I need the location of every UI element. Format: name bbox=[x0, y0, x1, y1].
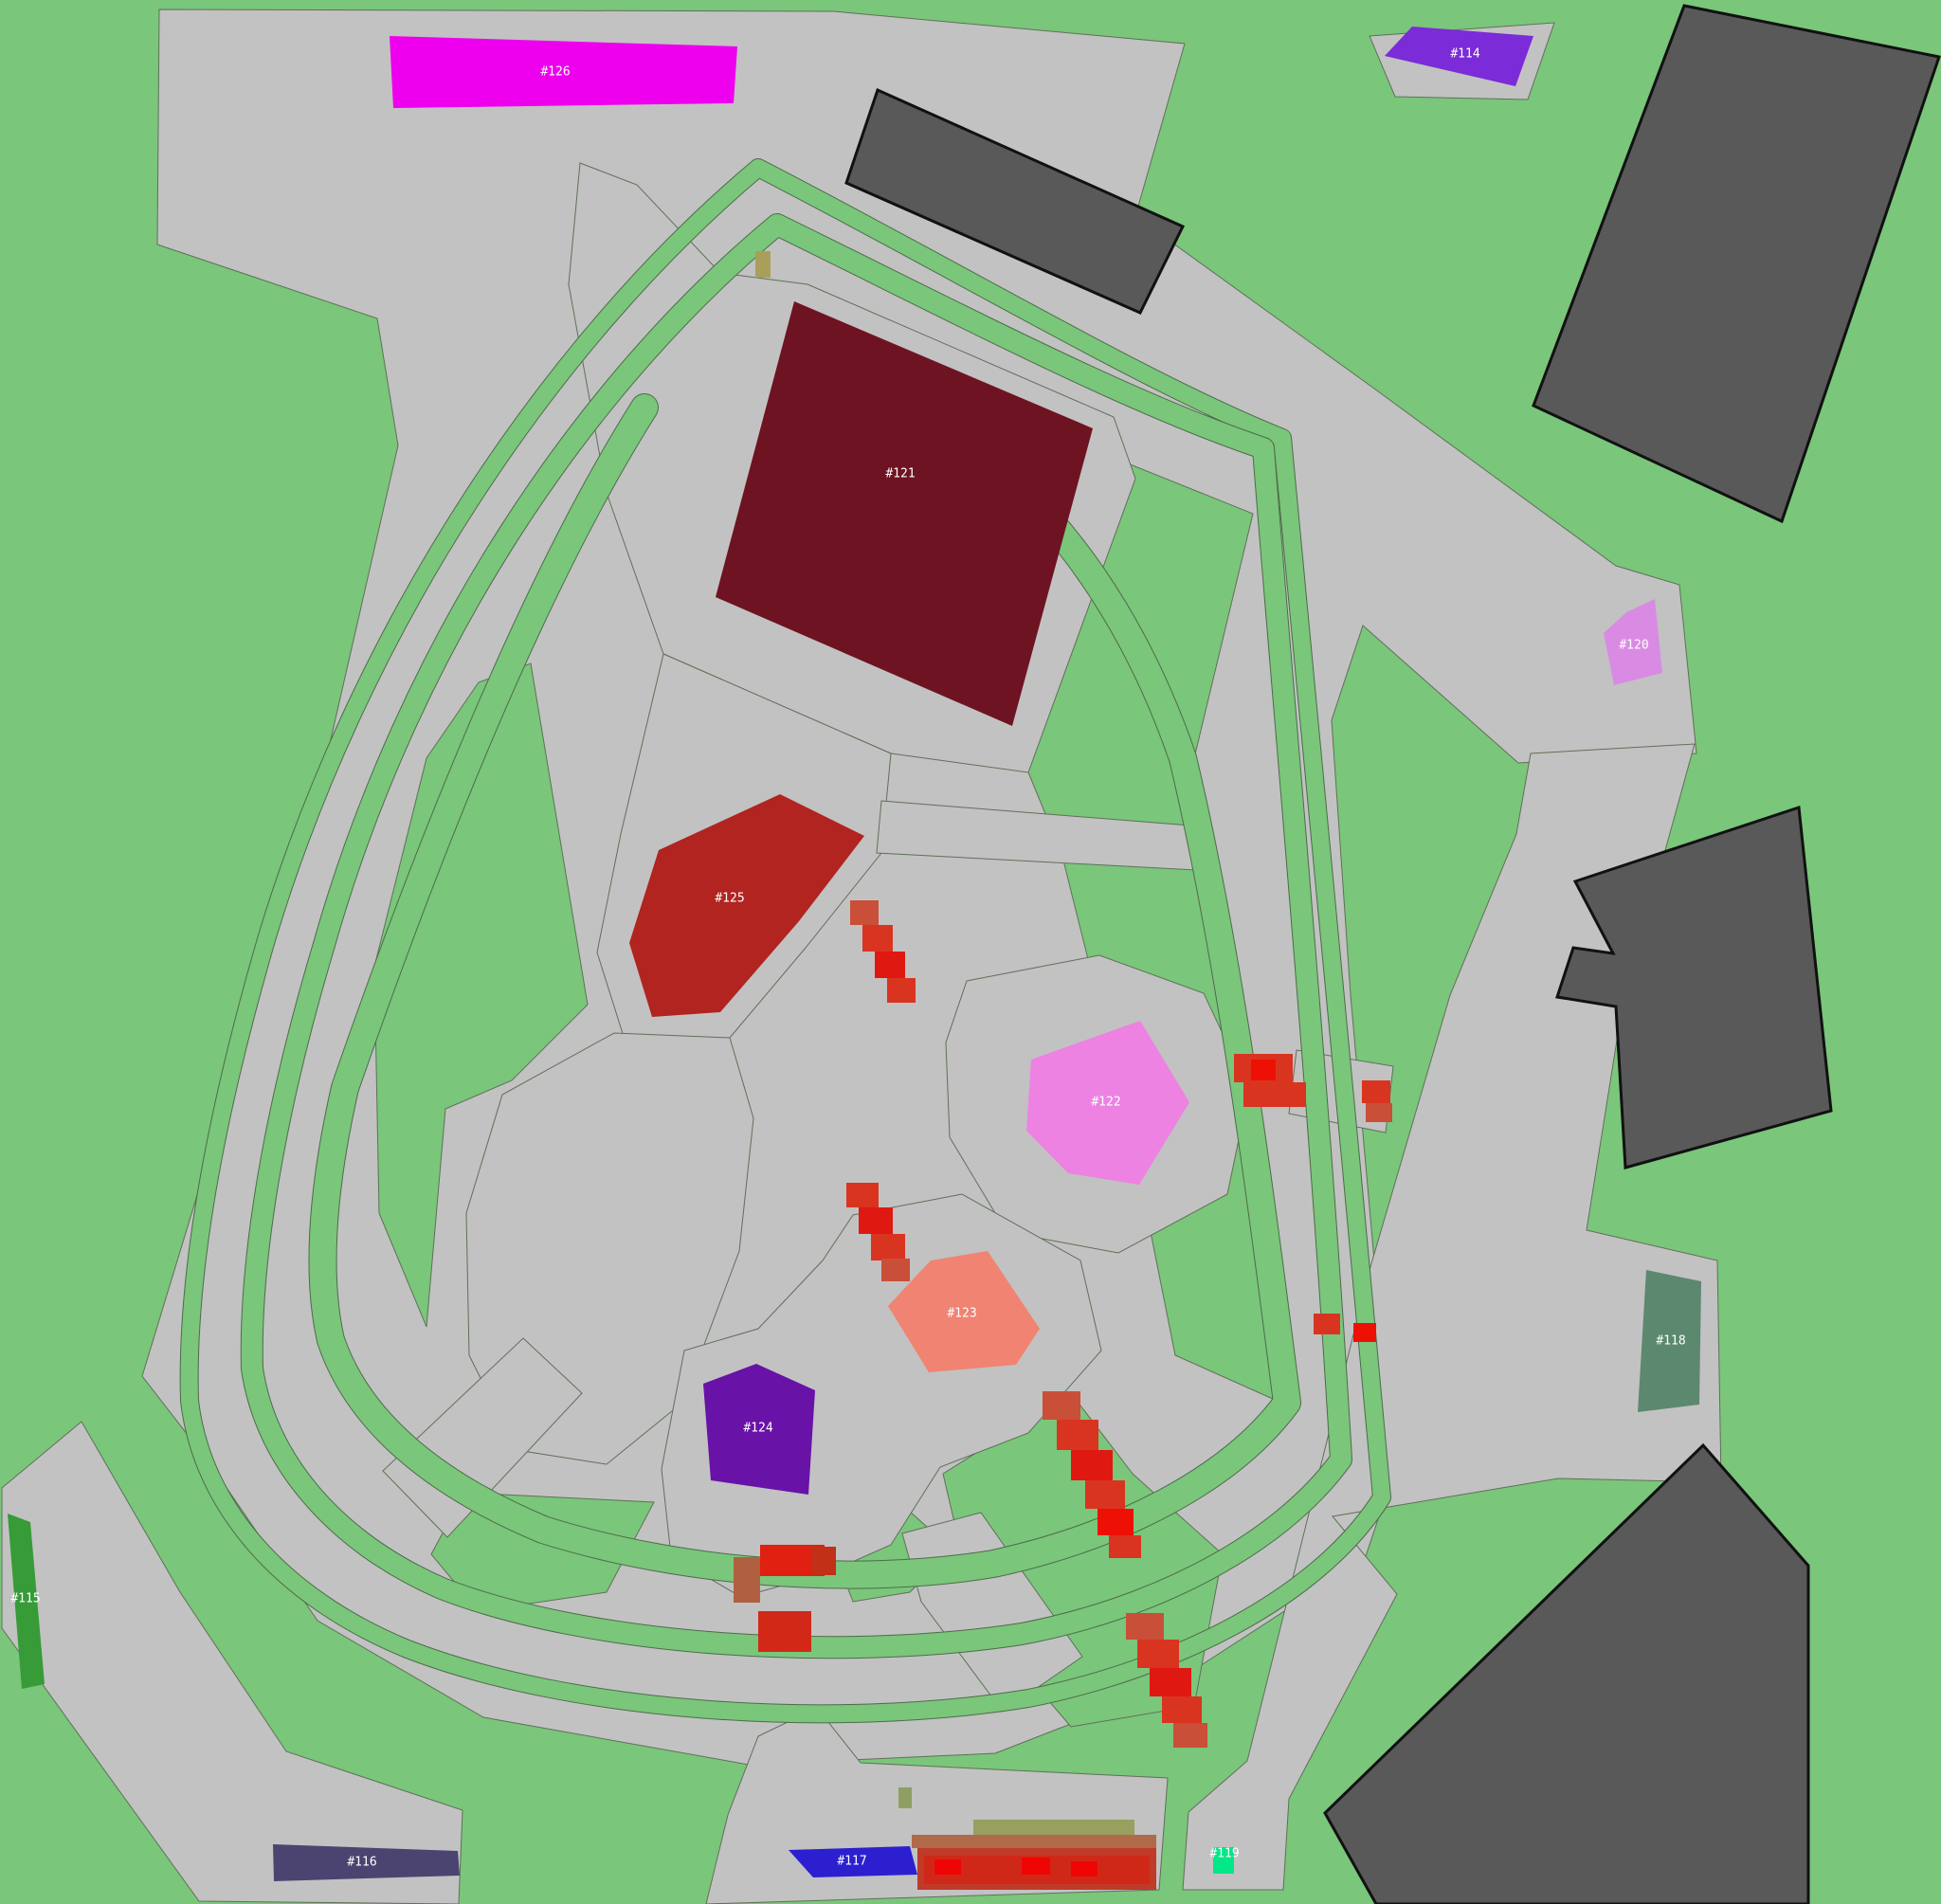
lot-126-label: #126 bbox=[540, 65, 570, 80]
stairs-east-road-2-block-1 bbox=[1353, 1323, 1376, 1342]
stairs-bottom-band-block-1 bbox=[912, 1835, 1156, 1848]
stairs-center-upper-block-2 bbox=[875, 952, 905, 978]
stairs-diagonal-south-block-0 bbox=[1126, 1613, 1164, 1640]
stairs-bottom-band-block-0 bbox=[973, 1820, 1134, 1835]
stairs-bottom-band-block-6 bbox=[1071, 1861, 1097, 1877]
stairs-east-road-2-block-0 bbox=[1314, 1314, 1340, 1334]
lot-120-label: #120 bbox=[1619, 639, 1648, 653]
stairs-center-mid-block-3 bbox=[881, 1259, 910, 1281]
stairs-diagonal-mid-block-2 bbox=[1071, 1450, 1113, 1480]
stairs-center-mid-block-2 bbox=[871, 1234, 905, 1260]
lot-122-label: #122 bbox=[1091, 1096, 1120, 1110]
marker-olive-patches-block-0 bbox=[755, 251, 771, 278]
stairs-diagonal-south-block-3 bbox=[1162, 1696, 1202, 1723]
stairs-diagonal-south-block-2 bbox=[1150, 1668, 1191, 1696]
stairs-center-upper-block-3 bbox=[887, 978, 916, 1003]
stairs-bottom-band-block-5 bbox=[1022, 1858, 1050, 1875]
stairs-below-lot124-block-3 bbox=[758, 1611, 811, 1652]
stairs-east-road-1-block-1 bbox=[1366, 1103, 1392, 1122]
marker-olive-patches-block-1 bbox=[898, 1787, 912, 1808]
lot-123-label: #123 bbox=[947, 1307, 976, 1321]
site-map: #126#114#121#120#125#122#123#124#118#115… bbox=[0, 0, 1941, 1904]
stairs-bottom-band-block-4 bbox=[934, 1859, 961, 1875]
lot-125-label: #125 bbox=[715, 892, 744, 906]
lot-121-label: #121 bbox=[885, 467, 915, 481]
stairs-east-of-lot122-block-1 bbox=[1243, 1082, 1306, 1107]
stairs-diagonal-south-block-4 bbox=[1173, 1723, 1207, 1748]
lot-124-label: #124 bbox=[743, 1422, 772, 1436]
lot-118-label: #118 bbox=[1656, 1334, 1685, 1349]
stairs-center-mid-block-0 bbox=[846, 1183, 879, 1207]
lot-115-label: #115 bbox=[10, 1592, 40, 1606]
stairs-below-lot124-block-2 bbox=[811, 1547, 836, 1575]
stairs-below-lot124-block-0 bbox=[734, 1557, 760, 1603]
stairs-center-upper-block-0 bbox=[850, 900, 879, 925]
stairs-diagonal-mid-block-4 bbox=[1097, 1509, 1134, 1535]
lot-114-label: #114 bbox=[1450, 47, 1479, 62]
lot-116-label: #116 bbox=[347, 1856, 376, 1870]
lot-119-label: #119 bbox=[1209, 1847, 1239, 1861]
stairs-center-mid-block-1 bbox=[859, 1207, 893, 1234]
stairs-east-road-1-block-0 bbox=[1362, 1080, 1390, 1103]
stairs-diagonal-mid-block-3 bbox=[1085, 1480, 1125, 1509]
stairs-east-of-lot122-block-2 bbox=[1251, 1060, 1276, 1080]
stairs-diagonal-mid-block-1 bbox=[1057, 1420, 1098, 1450]
stairs-diagonal-mid-block-5 bbox=[1109, 1535, 1141, 1558]
lot-117-label: #117 bbox=[837, 1855, 866, 1869]
site-map-stage: #126#114#121#120#125#122#123#124#118#115… bbox=[0, 0, 1941, 1904]
stairs-diagonal-mid-block-0 bbox=[1043, 1391, 1080, 1420]
stairs-diagonal-south-block-1 bbox=[1137, 1640, 1179, 1668]
stairs-center-upper-block-1 bbox=[862, 925, 893, 952]
